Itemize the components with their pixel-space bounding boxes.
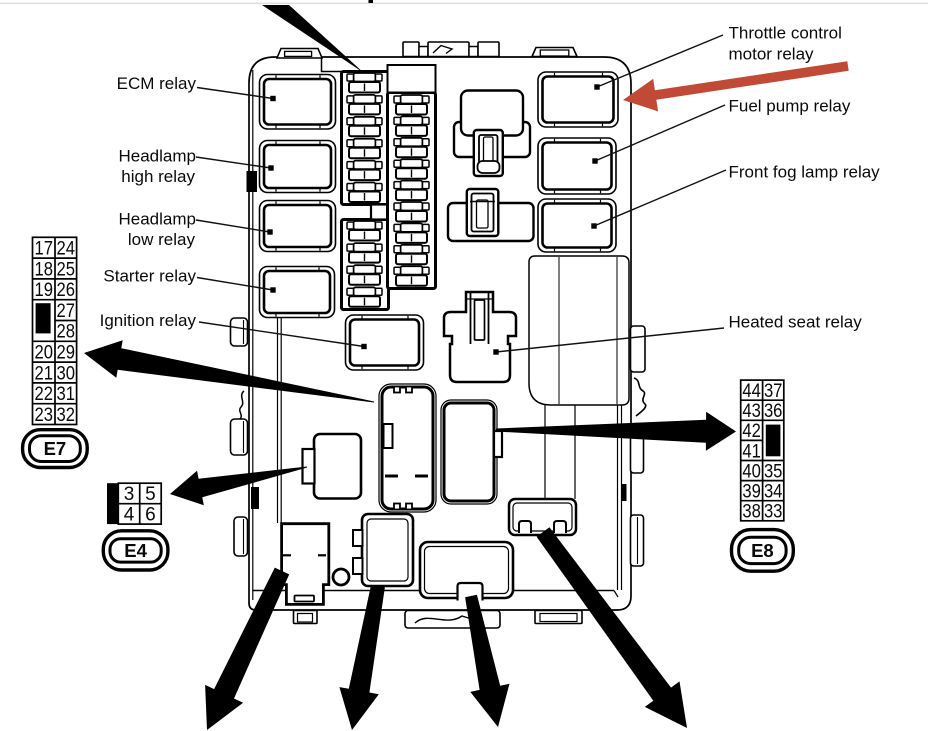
svg-text:36: 36 bbox=[764, 401, 783, 422]
svg-text:low relay: low relay bbox=[128, 230, 196, 249]
svg-text:41: 41 bbox=[742, 441, 761, 462]
svg-text:21: 21 bbox=[35, 363, 54, 384]
svg-text:Throttle control: Throttle control bbox=[729, 24, 842, 43]
svg-text:3: 3 bbox=[124, 484, 135, 505]
svg-text:20: 20 bbox=[35, 343, 54, 364]
svg-text:40: 40 bbox=[742, 461, 761, 482]
svg-text:25: 25 bbox=[57, 259, 76, 280]
svg-text:Headlamp: Headlamp bbox=[119, 147, 197, 166]
svg-text:30: 30 bbox=[57, 363, 76, 384]
svg-text:26: 26 bbox=[57, 280, 76, 301]
svg-text:28: 28 bbox=[57, 322, 76, 343]
svg-text:Heated seat relay: Heated seat relay bbox=[729, 313, 863, 332]
svg-text:22: 22 bbox=[35, 384, 54, 405]
svg-text:43: 43 bbox=[742, 401, 761, 422]
svg-text:17: 17 bbox=[35, 239, 54, 260]
svg-text:Fuel pump relay: Fuel pump relay bbox=[729, 96, 851, 115]
svg-text:4: 4 bbox=[124, 505, 135, 526]
svg-text:E7: E7 bbox=[44, 438, 67, 459]
svg-text:39: 39 bbox=[742, 482, 761, 503]
svg-text:27: 27 bbox=[57, 301, 76, 322]
svg-text:Ignition relay: Ignition relay bbox=[100, 311, 197, 330]
svg-text:44: 44 bbox=[742, 381, 761, 402]
svg-text:24: 24 bbox=[57, 239, 76, 260]
svg-text:19: 19 bbox=[35, 280, 54, 301]
svg-text:Headlamp: Headlamp bbox=[119, 210, 197, 229]
svg-text:motor relay: motor relay bbox=[729, 45, 815, 64]
svg-text:34: 34 bbox=[764, 482, 783, 503]
svg-text:31: 31 bbox=[57, 384, 76, 405]
svg-text:6: 6 bbox=[145, 505, 156, 526]
svg-text:ECM relay: ECM relay bbox=[117, 74, 197, 93]
svg-text:18: 18 bbox=[35, 259, 54, 280]
svg-text:35: 35 bbox=[764, 461, 783, 482]
svg-text:33: 33 bbox=[764, 502, 783, 523]
svg-text:Front fog lamp relay: Front fog lamp relay bbox=[729, 163, 881, 182]
svg-text:42: 42 bbox=[742, 421, 761, 442]
svg-text:E4: E4 bbox=[124, 540, 147, 561]
svg-text:5: 5 bbox=[145, 484, 156, 505]
svg-text:23: 23 bbox=[35, 405, 54, 426]
svg-text:37: 37 bbox=[764, 381, 783, 402]
svg-text:32: 32 bbox=[57, 405, 76, 426]
svg-text:29: 29 bbox=[57, 343, 76, 364]
svg-text:E8: E8 bbox=[751, 540, 774, 561]
svg-text:Starter relay: Starter relay bbox=[103, 267, 196, 286]
svg-text:high relay: high relay bbox=[121, 167, 195, 186]
svg-text:38: 38 bbox=[742, 502, 761, 523]
